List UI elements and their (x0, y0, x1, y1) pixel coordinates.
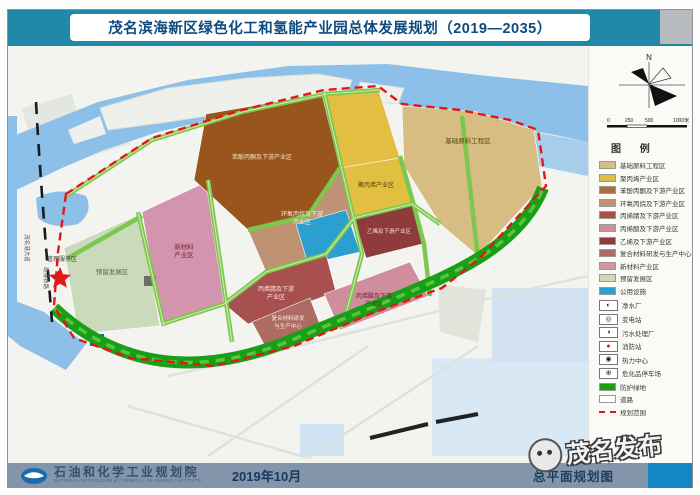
page-number-box (648, 463, 692, 488)
zone-label-new-material-1: 新材料 (174, 242, 194, 251)
rose-petal-ne (649, 68, 671, 84)
legend-color-swatch (599, 274, 616, 282)
legend-area-item: 聚丙烯产业区 (599, 173, 692, 183)
legend-area-label: 聚丙烯产业区 (620, 173, 659, 183)
zone-label-aa-2: 产业区 (365, 300, 383, 308)
zone-label-phenol: 苯酚丙酮及下游产业区 (232, 153, 292, 161)
north-label: N (646, 53, 652, 62)
legend-symbol-label: 防护绿地 (620, 382, 646, 392)
scale-tick-500: 500 (645, 118, 654, 124)
legend-color-swatch (599, 174, 616, 182)
legend-symbol-item: ◐净水厂 (599, 300, 692, 311)
planning-poster: 茂名滨海新区绿色化工和氢能产业园总体发展规划（2019—2035） (0, 0, 700, 495)
scale-seg-3 (647, 125, 687, 128)
legend-area-item: 苯酚丙酮及下游产业区 (599, 185, 692, 195)
legend-symbol-item: ◑污水处理厂 (599, 327, 692, 338)
drawing-sheet: 茂名滨海新区绿色化工和氢能产业园总体发展规划（2019—2035） (7, 9, 693, 488)
zone-label-reserved: 预留发展区 (96, 267, 129, 276)
zone-label-po-1: 环氧丙烷及下游 (281, 210, 323, 218)
zone-label-ethylene: 乙烯及下游产业区 (367, 227, 412, 235)
legend-area-label: 环氧丙烷及下游产业区 (620, 198, 685, 208)
scale-bar: 0 250 500 1000米 (603, 116, 695, 134)
scale-tick-250: 250 (625, 118, 634, 124)
zone-label-po-2: 产业区 (293, 218, 311, 226)
legend-symbol-item: ◎变电站 (599, 314, 692, 325)
legend-color-swatch (599, 211, 616, 219)
legend-area-label: 基础原料工程区 (620, 160, 666, 170)
legend-symbol-label: 变电站 (622, 314, 642, 324)
road-label-railway: 疏港铁路 (42, 267, 50, 290)
legend-symbol-item: ◉热力中心 (599, 354, 692, 365)
map-canvas: 预留发展区 新材料 产业区 苯酚丙酮及下游产业区 基础原料工程区 聚丙烯产业区 … (8, 46, 588, 463)
zone-label-management: 管理服务区 (47, 255, 77, 263)
institute-name-block: 石油和化学工业规划院 NATIONAL PETROLEUM & CHEMICAL… (54, 466, 202, 484)
危化品停车场-icon: ⊕ (599, 368, 618, 379)
legend-symbol-item: ●消防站 (599, 341, 692, 352)
legend-area-item: 预留发展区 (599, 273, 692, 283)
zone-label-new-material-2: 产业区 (174, 250, 194, 259)
legend-area-label: 公用设施 (620, 286, 646, 296)
scale-ticks: 0 250 500 1000米 (607, 117, 689, 124)
legend-symbol-label: 规划范围 (620, 407, 646, 417)
legend-area-label: 苯酚丙酮及下游产业区 (620, 185, 685, 195)
legend-area-label: 新材料产业区 (620, 261, 659, 271)
legend-color-swatch (599, 237, 616, 245)
zone-label-polypropylene: 聚丙烯产业区 (358, 181, 394, 189)
legend-color-swatch (599, 383, 616, 391)
legend-symbol-label: 净水厂 (622, 300, 642, 310)
scale-tick-0: 0 (607, 118, 610, 124)
legend-area-label: 复合材料研发与生产中心 (620, 248, 692, 258)
legend-area-item: 丙烯酸及下游产业区 (599, 223, 692, 233)
legend-color-swatch (599, 161, 616, 169)
legend-area-item: 基础原料工程区 (599, 160, 692, 170)
legend-panel: N 0 250 500 1000米 图 例 基础原料工程区聚丙烯产业区苯酚 (588, 46, 692, 463)
wechat-account-icon (527, 436, 564, 473)
legend-symbol-item: ⊕危化品停车场 (599, 368, 692, 379)
净水厂-icon: ◐ (599, 300, 618, 311)
legend-symbol-label: 热力中心 (622, 355, 648, 365)
热力中心-icon: ◉ (599, 354, 618, 365)
legend-color-swatch (599, 287, 616, 295)
legend-area-list: 基础原料工程区聚丙烯产业区苯酚丙酮及下游产业区环氧丙烷及下游产业区丙烯腈及下游产… (597, 160, 692, 296)
污水处理厂-icon: ◑ (599, 327, 618, 338)
legend-area-item: 公用设施 (599, 286, 692, 296)
zone-label-composite-2: 与生产中心 (274, 322, 302, 330)
legend-area-label: 丙烯酸及下游产业区 (620, 223, 679, 233)
river-west-strip (8, 116, 17, 326)
rose-petal-se (649, 84, 677, 106)
zone-label-base-material: 基础原料工程区 (445, 136, 491, 145)
road-label-avenue: 茂名港大道 (23, 234, 31, 262)
zone-label-an-1: 丙烯腈及下游 (258, 285, 294, 293)
legend-area-label: 乙烯及下游产业区 (620, 236, 672, 246)
sea-southeast (492, 288, 588, 362)
footer-date: 2019年10月 (232, 466, 301, 485)
legend-area-item: 复合材料研发与生产中心 (599, 248, 692, 258)
legend-symbol-item: 规划范围 (599, 407, 692, 417)
legend-area-item: 环氧丙烷及下游产业区 (599, 198, 692, 208)
page-title: 茂名滨海新区绿色化工和氢能产业园总体发展规划（2019—2035） (108, 17, 552, 38)
scale-seg-1 (607, 125, 627, 128)
legend-color-swatch (599, 249, 616, 257)
legend-color-swatch (599, 186, 616, 194)
title-bar: 茂名滨海新区绿色化工和氢能产业园总体发展规划（2019—2035） (8, 10, 660, 46)
title-pill: 茂名滨海新区绿色化工和氢能产业园总体发展规划（2019—2035） (70, 14, 590, 41)
zone-label-aa-1: 丙烯酸及下游 (356, 292, 392, 300)
zone-label-an-2: 产业区 (267, 293, 285, 301)
zone-label-composite-1: 复合材料研发 (271, 314, 305, 322)
legend-area-label: 丙烯腈及下游产业区 (620, 210, 679, 220)
legend-symbol-list: ◐净水厂◎变电站◑污水处理厂●消防站◉热力中心⊕危化品停车场防护绿地道路规划范围 (597, 300, 692, 417)
scale-tick-1000: 1000米 (673, 117, 689, 124)
legend-title: 图 例 (611, 140, 692, 155)
scale-seg-2 (627, 125, 647, 128)
map-area: 预留发展区 新材料 产业区 苯酚丙酮及下游产业区 基础原料工程区 聚丙烯产业区 … (8, 46, 588, 463)
legend-symbol-label: 污水处理厂 (622, 328, 655, 338)
institute-logo (20, 467, 48, 485)
legend-color-swatch (599, 224, 616, 232)
institute-name-en: NATIONAL PETROLEUM & CHEMICAL PLANNING I… (54, 478, 202, 484)
变电站-icon: ◎ (599, 314, 618, 325)
institute-name: 石油和化学工业规划院 (54, 466, 202, 478)
north-rose: N (603, 50, 695, 116)
legend-area-item: 新材料产业区 (599, 261, 692, 271)
title-bar-end-block (660, 10, 692, 46)
legend-symbol-label: 道路 (620, 394, 633, 404)
mudflat (438, 284, 486, 342)
legend-symbol-label: 危化品停车场 (622, 368, 661, 378)
消防站-icon: ● (599, 341, 618, 352)
legend-symbol-label: 消防站 (622, 341, 642, 351)
legend-color-swatch (599, 199, 616, 207)
legend-symbol-item: 防护绿地 (599, 382, 692, 392)
legend-area-item: 丙烯腈及下游产业区 (599, 210, 692, 220)
legend-color-swatch (599, 395, 616, 403)
boundary-dash-icon (599, 411, 616, 413)
legend-area-item: 乙烯及下游产业区 (599, 236, 692, 246)
legend-area-label: 预留发展区 (620, 273, 653, 283)
legend-symbol-item: 道路 (599, 394, 692, 404)
rose-petal-nw (631, 68, 649, 84)
legend-color-swatch (599, 262, 616, 270)
